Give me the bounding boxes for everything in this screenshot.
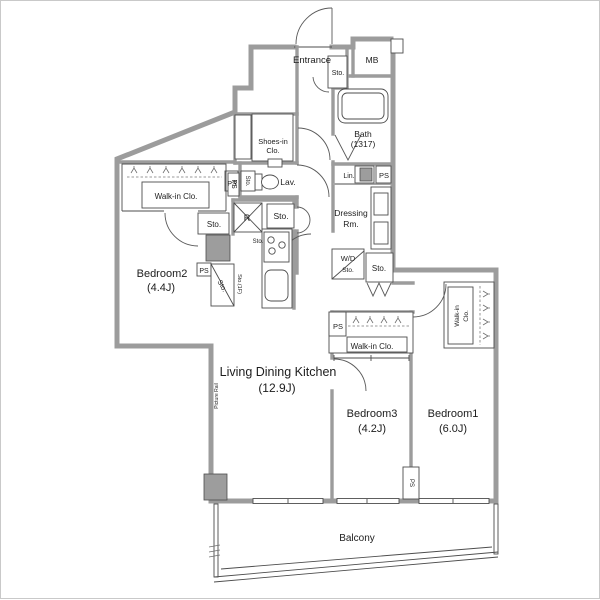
dressing-cabinet: [371, 187, 391, 249]
label-ps-b2: PS: [230, 179, 237, 189]
label-lav: Lav.: [280, 177, 295, 187]
label-walkin-b2: Walk-in Clo.: [155, 192, 198, 201]
label-bedroom1-name: Bedroom1: [428, 408, 479, 420]
label-bath-size: (1317): [351, 139, 376, 149]
label-balcony: Balcony: [339, 533, 375, 544]
label-wd: W/D: [341, 254, 356, 263]
label-ldk-size: (12.9J): [258, 381, 295, 395]
windows: [253, 499, 489, 504]
hall-door-arc: [298, 128, 330, 160]
label-bedroom3-size: (4.2J): [358, 423, 386, 435]
label-entrance: Entrance: [293, 55, 331, 66]
label-sto-kitchen: Sto.: [253, 239, 264, 245]
label-bath-name: Bath: [354, 129, 372, 139]
label-dressing-1: Dressing: [334, 208, 368, 218]
label-sto-1f: Sto.(1F): [236, 274, 242, 294]
label-dressing-2: Rm.: [343, 219, 359, 229]
label-ldk-name: Living Dining Kitchen: [220, 365, 337, 379]
label-ps-b1: PS: [408, 479, 414, 487]
label-lin: Lin.: [343, 173, 354, 180]
label-shoes-2: Clo.: [266, 146, 279, 155]
label-ps-b3: PS: [333, 322, 343, 331]
bedroom3-walkin-closet: [329, 312, 413, 361]
label-mb: MB: [366, 55, 379, 65]
label-bedroom2-size: (4.4J): [147, 282, 175, 294]
label-bedroom3-name: Bedroom3: [347, 408, 398, 420]
label-bedroom1-size: (6.0J): [439, 423, 467, 435]
label-picture-rail: Picture Rail: [214, 383, 220, 409]
kitchen-counter: [262, 229, 292, 308]
kitchen-sink: [265, 270, 288, 301]
bedroom1-door-arc: [413, 284, 446, 317]
label-sto-hall-upper: Sto.: [273, 211, 288, 221]
label-refrigerator: R: [244, 213, 251, 223]
entrance-door-arc: [296, 8, 332, 44]
gray-unit-upper: [206, 235, 230, 261]
label-sto-b2: Sto.: [207, 220, 221, 229]
label-walkin-b1-2: Clo.: [463, 310, 470, 322]
bathtub: [338, 89, 388, 123]
bedroom2-door-arc: [165, 213, 198, 246]
label-sto-wd: Sto.: [342, 267, 354, 274]
bedroom3-door-arc: [334, 359, 366, 391]
floor-plan-page: Entrance Sto. MB Bath (1317) Lin. PS Sho…: [0, 0, 600, 599]
label-walkin-b3: Walk-in Clo.: [351, 342, 394, 351]
label-sto-dressing: Sto.: [372, 264, 386, 273]
wall-notch: [391, 39, 403, 53]
label-shoes-1: Shoes-in: [258, 137, 288, 146]
label-bedroom2-name: Bedroom2: [137, 268, 188, 280]
bedroom2-walkin-closet: [122, 164, 226, 211]
label-ps-bath: PS: [379, 171, 389, 180]
label-walkin-b1-1: Walk-in: [454, 305, 461, 327]
linen-box: [355, 166, 374, 183]
label-sto-lav: Sto.: [244, 176, 250, 187]
gray-unit-lower: [204, 474, 227, 500]
label-ps-kitchen: PS: [199, 268, 209, 275]
label-entrance-sto: Sto.: [332, 70, 345, 77]
lavatory-door-arc: [297, 165, 329, 197]
floor-plan-svg: Entrance Sto. MB Bath (1317) Lin. PS Sho…: [1, 1, 600, 600]
dressing-storage-box: [366, 253, 393, 296]
